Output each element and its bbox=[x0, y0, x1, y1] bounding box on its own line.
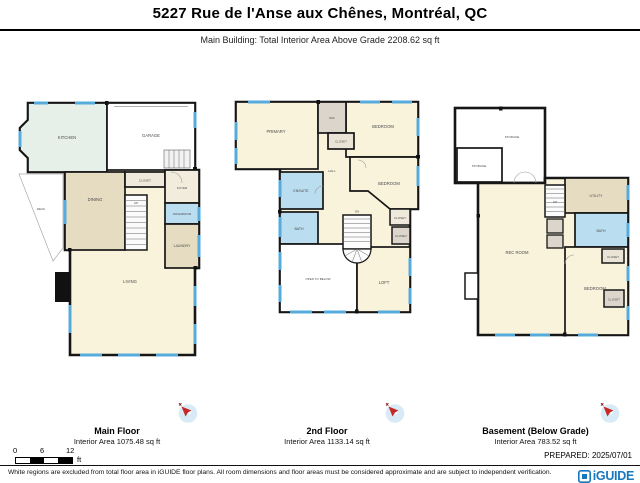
label-closet2-basement: CLOSET bbox=[608, 298, 620, 302]
label-storage1: STORAGE bbox=[505, 135, 520, 139]
scale-tick-6: 6 bbox=[40, 446, 44, 455]
north-compass-icon bbox=[177, 402, 199, 424]
room-dining bbox=[65, 172, 125, 250]
utility-cell-1 bbox=[547, 219, 563, 233]
label-up-basement: UP bbox=[553, 200, 557, 204]
label-washroom: WASHROOM bbox=[173, 212, 192, 216]
label-closet-r2: CLOSET bbox=[395, 234, 407, 238]
label-dining: DINING bbox=[88, 197, 103, 202]
label-loft: LOFT bbox=[379, 280, 390, 285]
label-bedroom2: BEDROOM bbox=[372, 124, 394, 129]
footer-divider bbox=[0, 465, 640, 466]
label-primary: PRIMARY bbox=[266, 129, 285, 134]
label-foyer: FOYER bbox=[177, 186, 188, 190]
iguide-logo-icon bbox=[578, 470, 591, 483]
basement-caption: Basement (Below Grade) Interior Area 783… bbox=[438, 426, 633, 446]
room-deck bbox=[19, 174, 63, 261]
scale-bar: 0 6 12 ft bbox=[15, 446, 105, 464]
label-bath-basement: BATH bbox=[596, 229, 606, 233]
disclaimer-text: White regions are excluded from total fl… bbox=[8, 469, 563, 476]
label-deck: DECK bbox=[37, 207, 45, 211]
scale-tick-12: 12 bbox=[66, 446, 74, 455]
fireplace bbox=[55, 272, 70, 302]
label-ensuite: ENSUITE bbox=[293, 189, 309, 193]
basement-area: Interior Area 783.52 sq ft bbox=[438, 437, 633, 446]
scale-unit: ft bbox=[77, 455, 81, 464]
label-bedroom-basement: BEDROOM bbox=[584, 286, 606, 291]
scale-ticks: 0 6 12 bbox=[15, 446, 105, 455]
iguide-logo: iGUIDE bbox=[578, 469, 634, 483]
label-closet-r1: CLOSET bbox=[394, 216, 406, 220]
garage-entry-steps bbox=[164, 150, 190, 168]
label-closet: CLOSET bbox=[139, 179, 151, 183]
building-area-subtitle: Main Building: Total Interior Area Above… bbox=[0, 35, 640, 45]
prepared-date: PREPARED: 2025/07/01 bbox=[544, 451, 632, 460]
label-hall: HALL bbox=[328, 169, 336, 173]
label-closet1-basement: CLOSET bbox=[607, 255, 619, 259]
second-floor-area: Interior Area 1133.14 sq ft bbox=[228, 437, 426, 446]
main-floor-area: Interior Area 1075.48 sq ft bbox=[18, 437, 216, 446]
floorplan-2nd-floor: PRIMARY WIC CLOSET BEDROOM BEDROOM ENSUI… bbox=[228, 100, 426, 320]
scale-tick-0: 0 bbox=[13, 446, 17, 455]
label-kitchen: KITCHEN bbox=[58, 135, 76, 140]
floorplan-main-floor: KITCHEN GARAGE DECK DINING CLOSET FOYER … bbox=[18, 100, 216, 358]
label-laundry: LAUNDRY bbox=[174, 244, 191, 248]
room-bedroom2 bbox=[346, 102, 418, 157]
label-living: LIVING bbox=[123, 279, 137, 284]
label-utility: UTILITY bbox=[589, 194, 603, 198]
page-title: 5227 Rue de l'Anse aux Chênes, Montréal,… bbox=[0, 5, 640, 22]
header-divider bbox=[0, 29, 640, 31]
label-storage2: STORAGE bbox=[472, 164, 487, 168]
north-compass-icon bbox=[599, 402, 621, 424]
label-bath-2nd: BATH bbox=[294, 227, 304, 231]
main-floor-caption: Main Floor Interior Area 1075.48 sq ft bbox=[18, 426, 216, 446]
staircase-curved bbox=[343, 215, 371, 263]
main-floor-name: Main Floor bbox=[18, 426, 216, 436]
floorplan-basement: STORAGE STORAGE REC ROOM UP UTILITY BATH… bbox=[438, 104, 633, 340]
fireplace-nook bbox=[465, 273, 478, 299]
label-closet-top: CLOSET bbox=[335, 140, 347, 144]
scale-bar-segments bbox=[15, 457, 73, 464]
label-up: UP bbox=[134, 201, 138, 205]
label-garage: GARAGE bbox=[142, 133, 160, 138]
utility-cell-2 bbox=[547, 235, 563, 248]
label-rec-room: REC ROOM bbox=[505, 250, 529, 255]
label-wic: WIC bbox=[329, 116, 336, 120]
basement-name: Basement (Below Grade) bbox=[438, 426, 633, 436]
iguide-logo-text: iGUIDE bbox=[593, 469, 634, 483]
label-dn: DN bbox=[355, 210, 359, 214]
second-floor-caption: 2nd Floor Interior Area 1133.14 sq ft bbox=[228, 426, 426, 446]
north-compass-icon bbox=[384, 402, 406, 424]
label-open-to-below: OPEN TO BELOW bbox=[305, 277, 330, 281]
room-primary bbox=[236, 102, 318, 169]
second-floor-name: 2nd Floor bbox=[228, 426, 426, 436]
label-bedroom3: BEDROOM bbox=[378, 181, 400, 186]
